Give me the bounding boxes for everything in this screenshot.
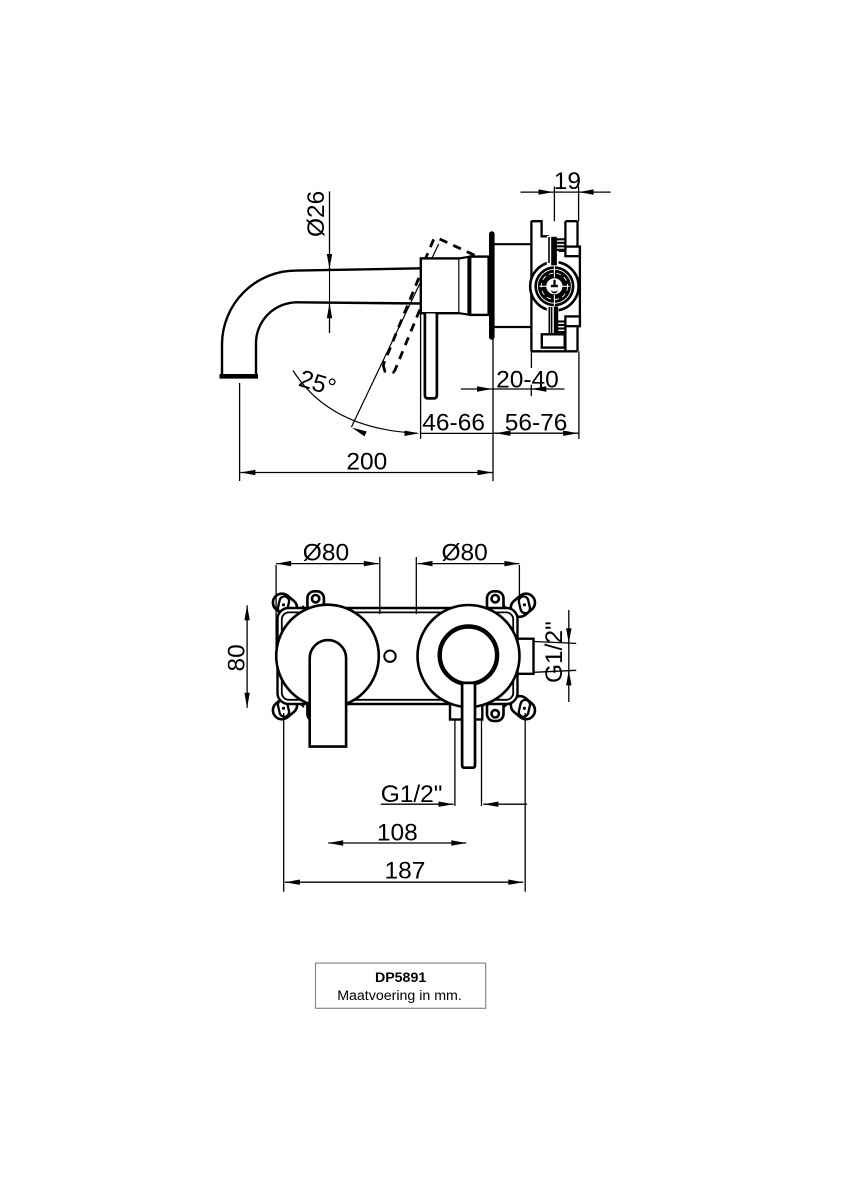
svg-text:187: 187 xyxy=(385,858,426,885)
svg-text:G1/2": G1/2" xyxy=(541,621,568,683)
svg-text:G1/2": G1/2" xyxy=(381,781,443,808)
svg-text:Ø80: Ø80 xyxy=(303,540,349,567)
svg-text:19: 19 xyxy=(554,168,581,195)
svg-text:DP5891: DP5891 xyxy=(375,970,426,986)
svg-text:56-76: 56-76 xyxy=(505,410,568,437)
svg-text:108: 108 xyxy=(377,820,418,847)
svg-text:Ø80: Ø80 xyxy=(442,540,488,567)
svg-text:Ø26: Ø26 xyxy=(303,191,330,237)
svg-text:25°: 25° xyxy=(296,365,339,402)
svg-text:Maatvoering in mm.: Maatvoering in mm. xyxy=(337,988,462,1004)
svg-text:46-66: 46-66 xyxy=(422,409,485,436)
svg-text:20-40: 20-40 xyxy=(496,366,559,393)
svg-text:80: 80 xyxy=(224,644,251,671)
svg-text:200: 200 xyxy=(346,448,387,475)
